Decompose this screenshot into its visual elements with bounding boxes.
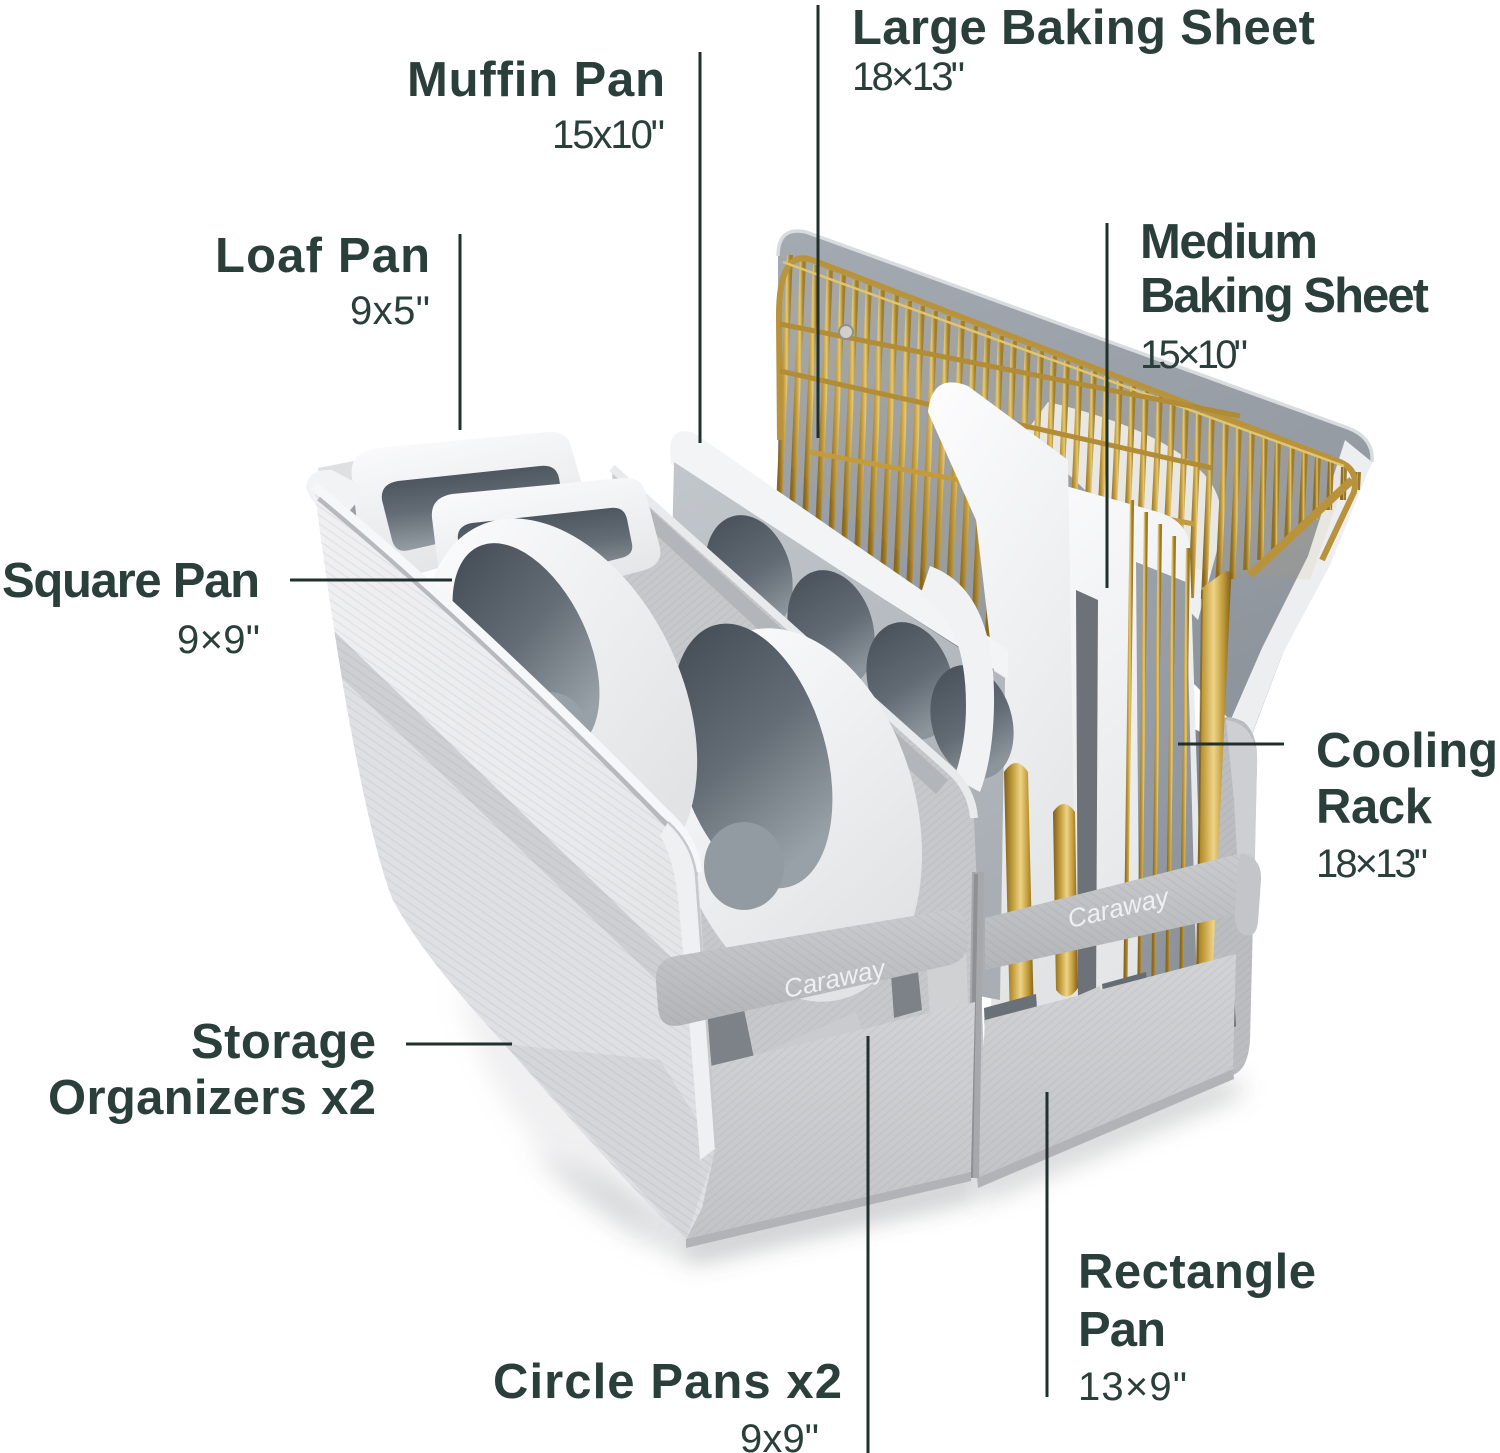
svg-text:18×13": 18×13" <box>1316 842 1428 886</box>
svg-text:13×9": 13×9" <box>1078 1365 1187 1409</box>
svg-text:Organizers x2: Organizers x2 <box>48 1071 376 1125</box>
svg-text:9×9": 9×9" <box>177 618 260 662</box>
svg-text:Baking Sheet: Baking Sheet <box>1140 269 1429 323</box>
svg-text:Circle Pans x2: Circle Pans x2 <box>493 1355 842 1409</box>
svg-text:Loaf Pan: Loaf Pan <box>215 229 430 283</box>
svg-text:9x9": 9x9" <box>740 1417 819 1453</box>
svg-text:9x5": 9x5" <box>350 289 430 333</box>
svg-text:18×13": 18×13" <box>852 55 965 99</box>
svg-text:15×10": 15×10" <box>1140 333 1248 377</box>
svg-text:Square Pan: Square Pan <box>2 554 260 608</box>
svg-text:Rack: Rack <box>1316 780 1433 834</box>
svg-text:Muffin Pan: Muffin Pan <box>407 53 665 107</box>
svg-text:Storage: Storage <box>191 1015 376 1069</box>
svg-text:Pan: Pan <box>1078 1303 1166 1357</box>
svg-text:Medium: Medium <box>1140 215 1318 269</box>
svg-text:Cooling: Cooling <box>1316 724 1498 778</box>
svg-text:15x10": 15x10" <box>552 113 665 157</box>
svg-text:Large Baking Sheet: Large Baking Sheet <box>852 1 1315 55</box>
svg-text:Rectangle: Rectangle <box>1078 1245 1316 1299</box>
